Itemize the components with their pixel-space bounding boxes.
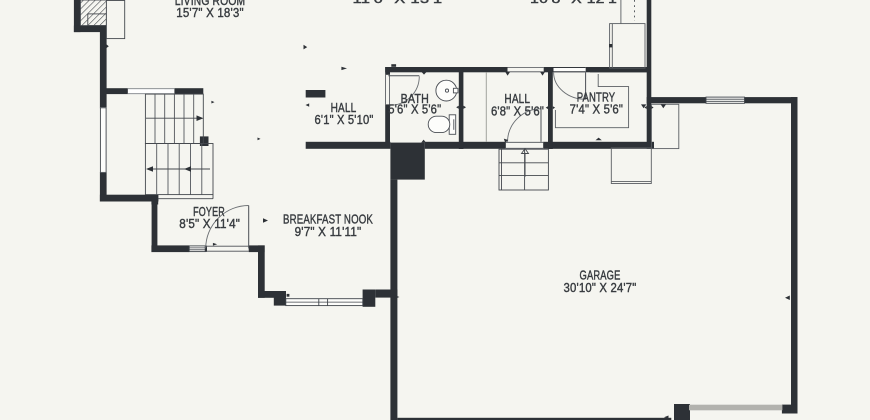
svg-text:5'6" X 5'6": 5'6" X 5'6" [388,103,441,117]
svg-text:8'5" X 11'4": 8'5" X 11'4" [179,217,240,231]
svg-text:10'8" X 12'1": 10'8" X 12'1" [530,0,623,6]
svg-text:7'4" X 5'6": 7'4" X 5'6" [570,103,624,117]
svg-text:9'7" X 11'11": 9'7" X 11'11" [295,225,362,239]
svg-text:15'7" X 18'3": 15'7" X 18'3" [176,6,244,20]
svg-text:30'10" X 24'7": 30'10" X 24'7" [564,281,637,295]
svg-text:6'8" X 5'6": 6'8" X 5'6" [491,105,544,119]
svg-text:11'0" X 13'1": 11'0" X 13'1" [353,0,449,6]
svg-text:6'1" X 5'10": 6'1" X 5'10" [315,113,374,127]
